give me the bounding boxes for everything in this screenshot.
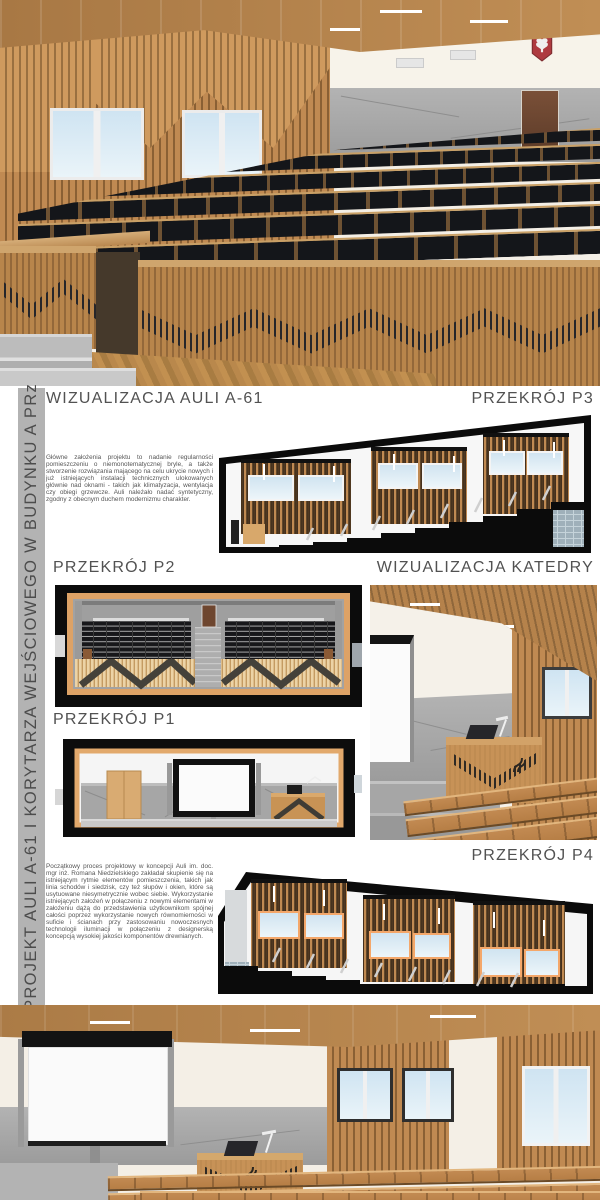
air-vent <box>450 50 476 60</box>
note-design-goals: Główne założenia projektu to nadanie reg… <box>46 454 213 503</box>
heading-przekroj-p3: PRZEKRÓJ P3 <box>471 390 594 408</box>
heading-przekroj-p4: PRZEKRÓJ P4 <box>471 847 594 865</box>
projection-screen <box>28 1047 168 1145</box>
p2-seat-block-right <box>225 621 337 659</box>
section-drawing-p3 <box>213 412 597 558</box>
screen-post-left <box>18 1039 24 1147</box>
ceiling-light <box>330 28 360 31</box>
sidebar-title: PROJEKT AULI A-61 I KORYTARZA WEJŚCIOWEG… <box>22 383 41 1011</box>
laptop <box>466 725 499 739</box>
front-bench-row <box>140 1191 600 1200</box>
screen-post-right <box>168 1039 174 1147</box>
heading-wizualizacja-katedry: WIZUALIZACJA KATEDRY <box>377 559 594 577</box>
front-window-dark-1 <box>337 1068 393 1122</box>
render-aula-a61 <box>0 0 600 386</box>
air-vent <box>396 58 424 68</box>
ceiling-light <box>480 625 514 628</box>
front-window-right <box>522 1066 590 1146</box>
render-aula-front <box>0 1005 600 1200</box>
render-katedra <box>370 585 597 840</box>
p3-concrete-block <box>553 510 584 547</box>
sidebar-project-title-strip: PROJEKT AULI A-61 I KORYTARZA WEJŚCIOWEG… <box>18 388 45 1005</box>
p2-center-stairs <box>195 627 221 687</box>
katedra-projection-screen <box>370 635 414 762</box>
front-laptop <box>224 1141 258 1156</box>
screen-top-case <box>22 1031 172 1047</box>
p2-seat-block-left <box>79 621 191 659</box>
ceiling-light <box>410 603 440 606</box>
heading-wizualizacja-auli: WIZUALIZACJA AULI A-61 <box>46 390 264 408</box>
heading-przekroj-p1: PRZEKRÓJ P1 <box>53 711 176 729</box>
aula-aisle-shadow <box>96 252 140 356</box>
aula-concrete-step-front <box>0 368 136 386</box>
ceiling-light <box>380 10 422 13</box>
ceiling-light <box>430 1015 476 1018</box>
note-design-process: Początkowy proces projektowy w koncepcji… <box>46 863 213 940</box>
section-drawing-p2 <box>55 585 362 707</box>
front-window-dark-2 <box>402 1068 454 1122</box>
presentation-board: WIZUALIZACJA AULI A-61 PRZEKRÓJ P3 PROJE… <box>0 0 600 1200</box>
ceiling-light <box>470 20 508 23</box>
heading-przekroj-p2: PRZEKRÓJ P2 <box>53 559 176 577</box>
ceiling-light <box>250 1029 300 1032</box>
section-drawing-p1 <box>55 731 362 845</box>
prz-logo <box>512 755 526 775</box>
ceiling-light <box>90 1021 130 1024</box>
katedra-window <box>542 667 592 719</box>
section-drawing-p4 <box>213 868 597 998</box>
front-floor <box>0 1163 118 1200</box>
aula-window-1 <box>50 108 144 180</box>
p1-laptop <box>287 785 302 794</box>
